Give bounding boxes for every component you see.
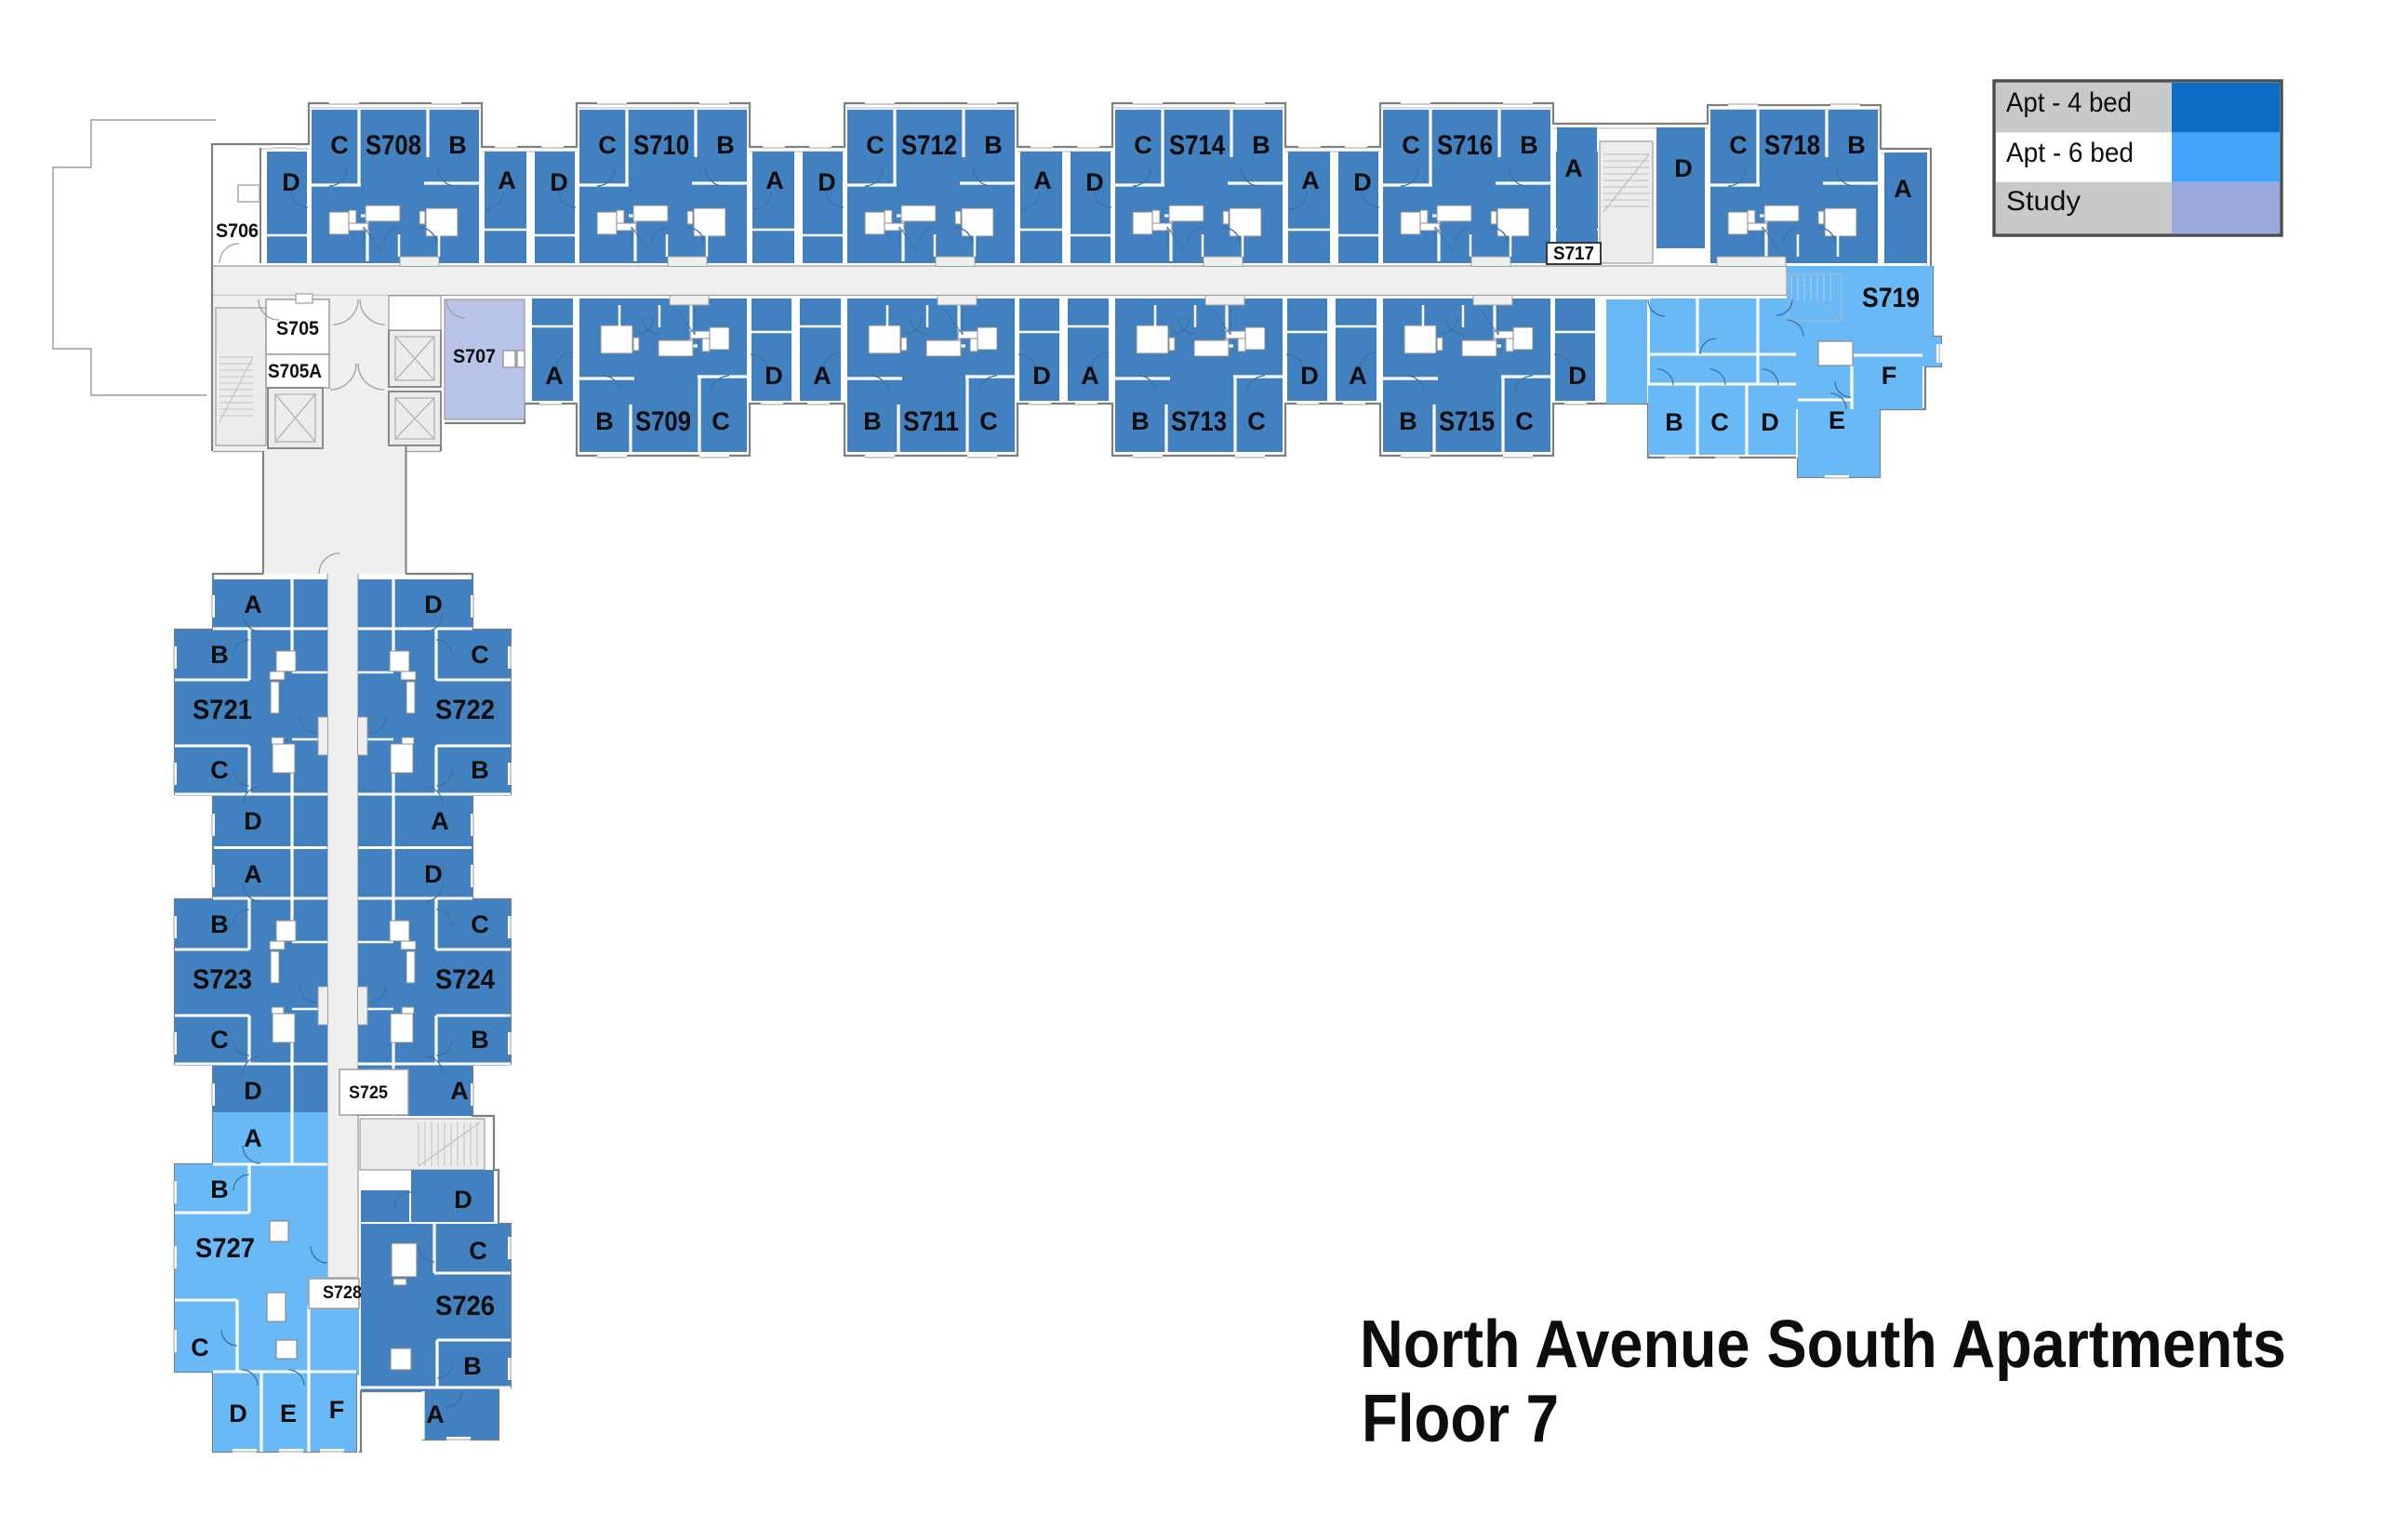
svg-text:S710: S710: [633, 130, 689, 161]
svg-text:D: D: [1300, 362, 1319, 390]
svg-text:A: A: [1301, 166, 1320, 194]
svg-text:Apt - 4 bed: Apt - 4 bed: [2006, 87, 2132, 118]
svg-text:B: B: [210, 910, 229, 938]
svg-text:A: A: [1033, 166, 1052, 194]
svg-text:S728: S728: [323, 1283, 362, 1303]
svg-text:C: C: [471, 910, 489, 938]
svg-text:B: B: [1847, 131, 1866, 159]
svg-text:D: D: [1568, 362, 1587, 390]
svg-text:A: A: [244, 860, 262, 888]
svg-text:B: B: [1131, 407, 1150, 435]
svg-text:A: A: [765, 166, 784, 194]
svg-text:S705: S705: [276, 318, 319, 339]
svg-text:C: C: [598, 131, 617, 159]
svg-text:B: B: [1252, 131, 1270, 159]
svg-text:A: A: [545, 362, 564, 390]
svg-text:D: D: [765, 362, 783, 390]
svg-text:B: B: [1665, 408, 1683, 436]
svg-text:C: C: [1729, 131, 1748, 159]
svg-text:B: B: [863, 407, 882, 435]
svg-text:S719: S719: [1862, 283, 1920, 313]
svg-text:C: C: [469, 1237, 487, 1265]
svg-text:D: D: [1353, 168, 1372, 196]
svg-text:B: B: [716, 131, 735, 159]
svg-text:D: D: [244, 1077, 262, 1105]
svg-text:A: A: [426, 1401, 445, 1428]
svg-text:S705A: S705A: [268, 361, 322, 382]
svg-text:A: A: [1081, 362, 1099, 390]
svg-text:B: B: [210, 641, 229, 669]
svg-text:C: C: [1402, 131, 1420, 159]
svg-text:A: A: [450, 1077, 469, 1105]
svg-text:S713: S713: [1171, 406, 1227, 437]
svg-text:C: C: [1134, 131, 1152, 159]
svg-text:C: C: [330, 131, 349, 159]
svg-text:C: C: [712, 407, 730, 435]
svg-text:D: D: [244, 807, 262, 835]
svg-text:B: B: [1399, 407, 1417, 435]
svg-text:B: B: [595, 407, 614, 435]
svg-text:C: C: [210, 756, 229, 784]
svg-text:A: A: [1349, 362, 1367, 390]
svg-text:D: D: [282, 168, 300, 196]
svg-text:D: D: [1674, 154, 1693, 182]
svg-text:C: C: [471, 641, 489, 669]
svg-text:A: A: [1894, 175, 1912, 203]
svg-text:A: A: [244, 591, 262, 618]
svg-text:Apt - 6 bed: Apt - 6 bed: [2006, 138, 2134, 168]
svg-text:B: B: [463, 1352, 482, 1380]
svg-text:S724: S724: [435, 964, 495, 995]
svg-text:S707: S707: [453, 346, 496, 367]
svg-text:A: A: [431, 807, 449, 835]
svg-text:S718: S718: [1764, 130, 1820, 161]
svg-text:A: A: [1564, 154, 1583, 182]
svg-text:B: B: [210, 1175, 229, 1203]
svg-text:C: C: [1247, 407, 1266, 435]
svg-text:D: D: [1085, 168, 1104, 196]
svg-text:S716: S716: [1437, 130, 1493, 161]
svg-text:S711: S711: [903, 406, 959, 437]
svg-text:Floor 7: Floor 7: [1362, 1382, 1559, 1456]
svg-text:F: F: [329, 1396, 345, 1424]
svg-text:A: A: [813, 362, 831, 390]
svg-text:C: C: [866, 131, 885, 159]
svg-text:A: A: [498, 166, 516, 194]
svg-text:E: E: [1829, 406, 1845, 434]
svg-text:Study: Study: [2006, 186, 2081, 217]
svg-text:C: C: [1710, 408, 1729, 436]
svg-text:S725: S725: [349, 1083, 388, 1103]
svg-text:D: D: [1761, 408, 1779, 436]
svg-text:North Avenue South Apartments: North Avenue South Apartments: [1360, 1308, 2286, 1382]
svg-text:S726: S726: [435, 1291, 495, 1321]
svg-text:S722: S722: [435, 695, 495, 725]
svg-text:S721: S721: [193, 695, 252, 725]
svg-text:S706: S706: [216, 220, 259, 242]
svg-text:B: B: [471, 756, 489, 784]
svg-text:D: D: [550, 168, 568, 196]
svg-text:S715: S715: [1439, 406, 1495, 437]
svg-text:B: B: [448, 131, 467, 159]
svg-text:D: D: [818, 168, 836, 196]
svg-text:A: A: [244, 1124, 262, 1152]
svg-text:S717: S717: [1553, 244, 1594, 264]
svg-text:D: D: [229, 1400, 247, 1427]
svg-text:B: B: [471, 1026, 489, 1054]
svg-text:S708: S708: [366, 130, 421, 161]
svg-text:F: F: [1882, 362, 1897, 390]
svg-text:C: C: [1515, 407, 1534, 435]
svg-text:C: C: [979, 407, 998, 435]
svg-text:E: E: [280, 1400, 297, 1427]
svg-text:S712: S712: [901, 130, 957, 161]
svg-text:S727: S727: [195, 1233, 255, 1264]
svg-text:C: C: [210, 1026, 229, 1054]
svg-text:B: B: [984, 131, 1003, 159]
svg-text:B: B: [1520, 131, 1538, 159]
svg-text:D: D: [424, 860, 443, 888]
svg-text:S723: S723: [193, 964, 252, 995]
svg-text:D: D: [454, 1186, 472, 1214]
svg-text:D: D: [1032, 362, 1051, 390]
svg-text:C: C: [191, 1334, 209, 1361]
svg-text:S714: S714: [1169, 130, 1225, 161]
svg-text:S709: S709: [635, 406, 691, 437]
svg-text:D: D: [424, 591, 443, 618]
